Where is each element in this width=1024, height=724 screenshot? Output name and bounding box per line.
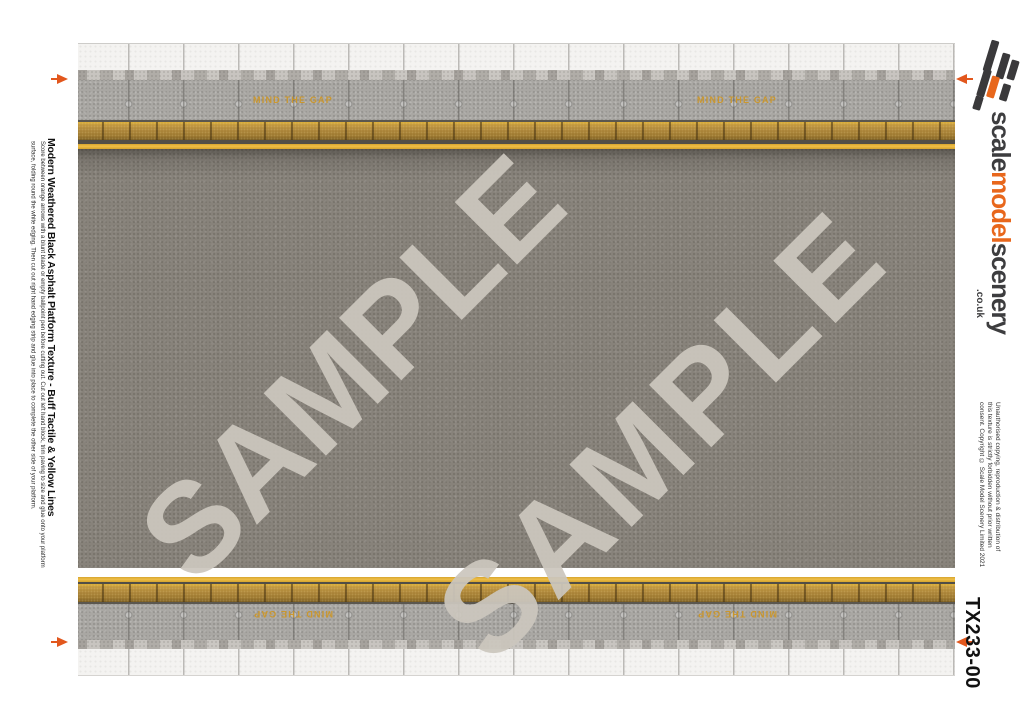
copyright-notice: Unauthorised copying, reproduction & dis…	[977, 402, 1001, 590]
score-arrow-icon	[956, 74, 967, 84]
brand-word-model: model	[986, 171, 1016, 243]
score-arrow-tail	[51, 641, 57, 643]
logo-plank	[1006, 59, 1019, 80]
white-edging-top	[78, 43, 955, 70]
product-title: Modern Weathered Black Asphalt Platform …	[45, 138, 57, 570]
score-arrow-icon	[57, 74, 68, 84]
logo-plank	[972, 95, 984, 111]
mind-the-gap-text: MIND THE GAP	[682, 95, 792, 105]
score-arrow-icon	[57, 637, 68, 647]
logo-plank	[982, 40, 999, 73]
weathered-strip-top	[78, 70, 955, 80]
brand-domain: .co.uk	[974, 289, 985, 318]
product-code: TX233-00	[960, 597, 983, 689]
mind-the-gap-text: MIND THE GAP	[682, 609, 792, 619]
mind-the-gap-text: MIND THE GAP	[238, 95, 348, 105]
concrete-edge-top	[78, 80, 955, 120]
brand-word-scenery: scenery	[986, 243, 1016, 334]
tactile-paving-top	[78, 122, 955, 140]
logo-plank	[999, 83, 1012, 102]
brand-wordmark: scalemodelscenery	[985, 111, 1016, 334]
mind-the-gap-text: MIND THE GAP	[238, 609, 348, 619]
usage-instructions: Score between orange arrows with a blunt…	[24, 141, 46, 569]
score-arrow-tail	[51, 78, 57, 80]
copyright-line: Unauthorised copying, reproduction & dis…	[993, 402, 1001, 590]
copyright-line: consent. Copyright © Scale Model Scenery…	[977, 402, 985, 590]
score-arrow-tail	[967, 78, 973, 80]
brand-word-scale: scale	[986, 111, 1016, 171]
copyright-line: this texture is strictly forbidden witho…	[985, 402, 993, 590]
